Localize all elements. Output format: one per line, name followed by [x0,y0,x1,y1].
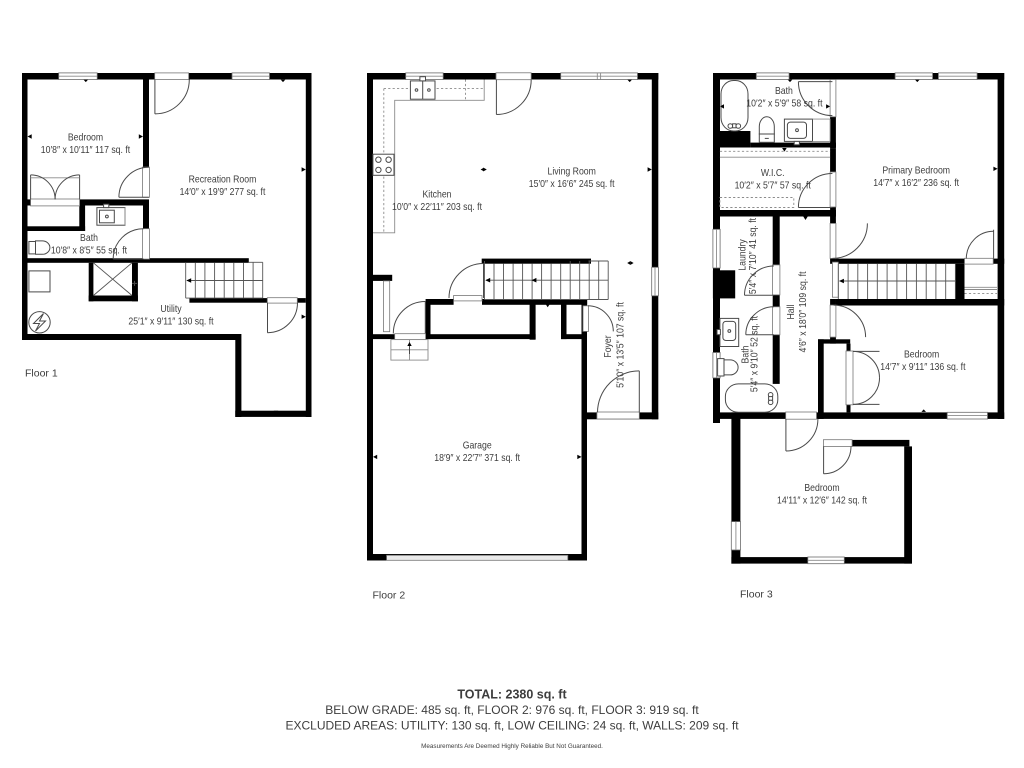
svg-text:Laundry: Laundry [738,239,749,271]
svg-text:10′0″ x 22′11″ 203 sq. ft: 10′0″ x 22′11″ 203 sq. ft [392,202,482,213]
svg-text:5′4″ x 9′10″ 52 sq. ft: 5′4″ x 9′10″ 52 sq. ft [750,316,761,392]
svg-text:Bedroom: Bedroom [804,483,839,494]
svg-text:10′2″ x 5′9″ 58 sq. ft: 10′2″ x 5′9″ 58 sq. ft [746,99,822,110]
svg-text:14′0″ x 19′9″ 277 sq. ft: 14′0″ x 19′9″ 277 sq. ft [180,187,266,198]
svg-text:14′7″ x 16′2″ 236 sq. ft: 14′7″ x 16′2″ 236 sq. ft [873,178,959,189]
svg-text:Primary Bedroom: Primary Bedroom [882,166,950,177]
svg-text:Hall: Hall [786,305,797,320]
svg-text:Floor 1: Floor 1 [25,368,58,380]
svg-text:Bath: Bath [80,233,98,244]
svg-text:10′8″ x 10′11″ 117 sq. ft: 10′8″ x 10′11″ 117 sq. ft [41,145,131,156]
svg-text:TOTAL: 2380 sq. ft: TOTAL: 2380 sq. ft [457,688,567,702]
svg-text:5′10″ x 13′5″ 107 sq. ft: 5′10″ x 13′5″ 107 sq. ft [616,302,627,388]
svg-text:EXCLUDED AREAS: UTILITY: 130 s: EXCLUDED AREAS: UTILITY: 130 sq. ft, LOW… [285,719,739,733]
svg-text:Kitchen: Kitchen [423,190,452,201]
svg-text:Recreation Room: Recreation Room [189,175,257,186]
svg-text:Living Room: Living Room [548,166,596,177]
svg-text:15′0″ x 16′6″ 245 sq. ft: 15′0″ x 16′6″ 245 sq. ft [529,179,615,190]
svg-text:25′1″ x 9′11″ 130 sq. ft: 25′1″ x 9′11″ 130 sq. ft [128,317,213,328]
svg-text:4′6″ x 18′0″ 109 sq. ft: 4′6″ x 18′0″ 109 sq. ft [798,271,809,352]
svg-text:Bath: Bath [775,86,793,97]
svg-text:14′7″ x 9′11″ 136 sq. ft: 14′7″ x 9′11″ 136 sq. ft [880,362,965,373]
svg-text:14′11″ x 12′6″ 142 sq. ft: 14′11″ x 12′6″ 142 sq. ft [777,495,867,506]
svg-text:W.I.C.: W.I.C. [761,168,785,179]
svg-text:Measurements Are Deemed Highly: Measurements Are Deemed Highly Reliable … [421,743,603,750]
svg-text:10′8″ x 8′5″ 55 sq. ft: 10′8″ x 8′5″ 55 sq. ft [51,245,127,256]
svg-text:Foyer: Foyer [603,335,614,358]
svg-text:5′4″ x 7′10″ 41 sq. ft: 5′4″ x 7′10″ 41 sq. ft [748,218,759,294]
svg-text:BELOW GRADE: 485 sq. ft, FLOOR: BELOW GRADE: 485 sq. ft, FLOOR 2: 976 sq… [325,703,699,717]
svg-text:Floor 3: Floor 3 [740,589,773,601]
svg-text:Floor 2: Floor 2 [373,590,406,602]
svg-text:10′2″ x 5′7″ 57 sq. ft: 10′2″ x 5′7″ 57 sq. ft [735,181,811,192]
svg-text:Garage: Garage [463,441,492,452]
svg-text:Bedroom: Bedroom [904,349,939,360]
svg-text:Utility: Utility [160,304,182,315]
svg-text:Bedroom: Bedroom [68,133,103,144]
svg-text:18′9″ x 22′7″ 371 sq. ft: 18′9″ x 22′7″ 371 sq. ft [434,453,520,464]
